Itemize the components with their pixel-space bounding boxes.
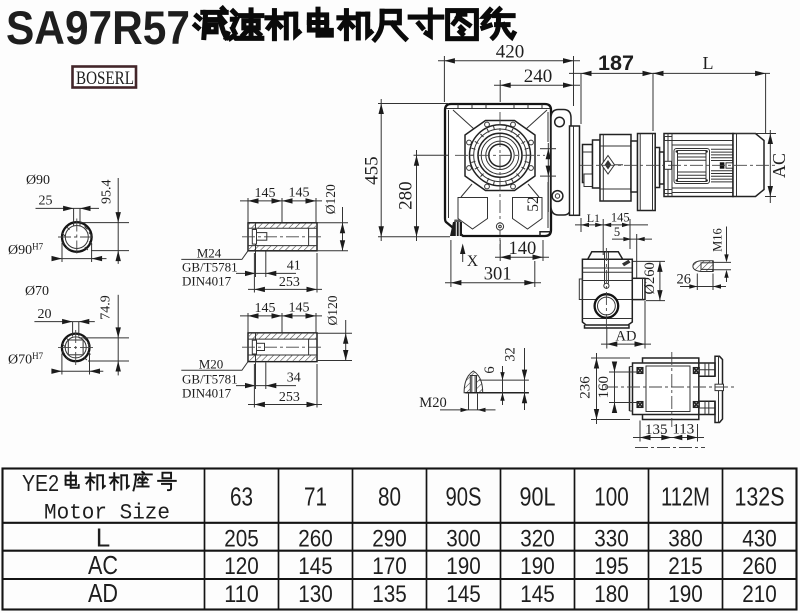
svg-text:Ø90: Ø90 bbox=[26, 173, 50, 188]
svg-text:52: 52 bbox=[525, 196, 542, 212]
svg-text:YE2: YE2 bbox=[22, 470, 59, 496]
svg-text:215: 215 bbox=[668, 553, 703, 580]
svg-text:253: 253 bbox=[279, 390, 300, 405]
svg-text:430: 430 bbox=[742, 526, 777, 553]
svg-text:6: 6 bbox=[482, 366, 498, 373]
svg-text:190: 190 bbox=[668, 581, 703, 608]
svg-text:20: 20 bbox=[38, 307, 52, 322]
svg-text:135: 135 bbox=[645, 422, 668, 438]
svg-text:190: 190 bbox=[446, 553, 481, 580]
svg-text:180: 180 bbox=[594, 581, 629, 608]
svg-text:Ø120: Ø120 bbox=[323, 184, 338, 214]
svg-text:41: 41 bbox=[287, 259, 301, 274]
svg-text:320: 320 bbox=[520, 526, 555, 553]
svg-text:301: 301 bbox=[484, 265, 512, 285]
svg-text:195: 195 bbox=[594, 553, 629, 580]
svg-text:210: 210 bbox=[742, 581, 777, 608]
svg-text:260: 260 bbox=[298, 526, 333, 553]
svg-text:34: 34 bbox=[287, 371, 301, 386]
svg-text:135: 135 bbox=[372, 581, 407, 608]
svg-text:GB/T5781: GB/T5781 bbox=[182, 260, 238, 275]
svg-text:63: 63 bbox=[230, 482, 253, 512]
svg-text:290: 290 bbox=[372, 526, 407, 553]
svg-text:80: 80 bbox=[378, 482, 401, 512]
svg-text:130: 130 bbox=[298, 581, 333, 608]
svg-text:AD: AD bbox=[616, 329, 637, 345]
svg-text:240: 240 bbox=[524, 66, 553, 87]
svg-text:205: 205 bbox=[224, 526, 259, 553]
svg-text:DIN4017: DIN4017 bbox=[182, 274, 232, 289]
svg-text:145: 145 bbox=[255, 186, 276, 201]
svg-text:170: 170 bbox=[372, 553, 407, 580]
svg-text:160: 160 bbox=[596, 376, 612, 399]
svg-text:145: 145 bbox=[289, 301, 310, 316]
svg-text:112M: 112M bbox=[661, 482, 710, 512]
svg-text:132S: 132S bbox=[735, 482, 785, 512]
svg-text:25: 25 bbox=[39, 194, 53, 209]
svg-text:AC: AC bbox=[769, 153, 789, 178]
svg-text:M16: M16 bbox=[711, 228, 725, 252]
svg-text:455: 455 bbox=[362, 156, 383, 185]
svg-text:110: 110 bbox=[224, 581, 259, 608]
svg-text:SA97R57: SA97R57 bbox=[6, 1, 190, 54]
svg-text:420: 420 bbox=[496, 42, 525, 63]
svg-text:190: 190 bbox=[520, 553, 555, 580]
svg-text:95.4: 95.4 bbox=[100, 180, 115, 205]
svg-text:Ø70: Ø70 bbox=[25, 284, 49, 299]
svg-text:280: 280 bbox=[396, 181, 417, 210]
svg-text:330: 330 bbox=[594, 526, 629, 553]
svg-text:145: 145 bbox=[611, 211, 630, 225]
svg-text:120: 120 bbox=[224, 553, 259, 580]
svg-text:74.9: 74.9 bbox=[99, 295, 114, 320]
svg-text:90L: 90L bbox=[520, 482, 556, 512]
svg-text:145: 145 bbox=[298, 553, 333, 580]
svg-text:L: L bbox=[96, 523, 110, 553]
svg-text:145: 145 bbox=[446, 581, 481, 608]
svg-text:BOSERL: BOSERL bbox=[76, 68, 134, 89]
svg-text:113: 113 bbox=[672, 422, 694, 438]
svg-text:145: 145 bbox=[255, 301, 276, 316]
svg-text:140: 140 bbox=[509, 239, 537, 259]
svg-text:253: 253 bbox=[279, 275, 300, 290]
svg-text:5: 5 bbox=[614, 225, 620, 239]
svg-text:Ø260: Ø260 bbox=[642, 262, 658, 294]
svg-text:100: 100 bbox=[594, 482, 629, 512]
svg-text:145: 145 bbox=[520, 581, 555, 608]
svg-text:X: X bbox=[467, 253, 478, 270]
svg-text:M20: M20 bbox=[419, 395, 446, 411]
svg-text:300: 300 bbox=[446, 526, 481, 553]
svg-text:90S: 90S bbox=[446, 482, 482, 512]
svg-text:71: 71 bbox=[304, 482, 327, 512]
svg-text:Ø120: Ø120 bbox=[325, 295, 340, 325]
svg-text:M24: M24 bbox=[197, 246, 222, 261]
svg-text:DIN4017: DIN4017 bbox=[182, 386, 232, 401]
svg-text:187: 187 bbox=[598, 52, 634, 75]
svg-text:32: 32 bbox=[503, 347, 519, 362]
svg-text:GB/T5781: GB/T5781 bbox=[182, 372, 238, 387]
svg-text:260: 260 bbox=[742, 553, 777, 580]
svg-text:380: 380 bbox=[668, 526, 703, 553]
svg-text:236: 236 bbox=[578, 376, 594, 399]
svg-text:L1: L1 bbox=[587, 211, 600, 225]
svg-text:AC: AC bbox=[88, 550, 118, 580]
svg-text:AD: AD bbox=[88, 578, 118, 608]
svg-text:L: L bbox=[703, 53, 714, 73]
svg-text:M20: M20 bbox=[199, 357, 224, 372]
svg-text:26: 26 bbox=[676, 272, 691, 288]
svg-text:145: 145 bbox=[289, 186, 310, 201]
